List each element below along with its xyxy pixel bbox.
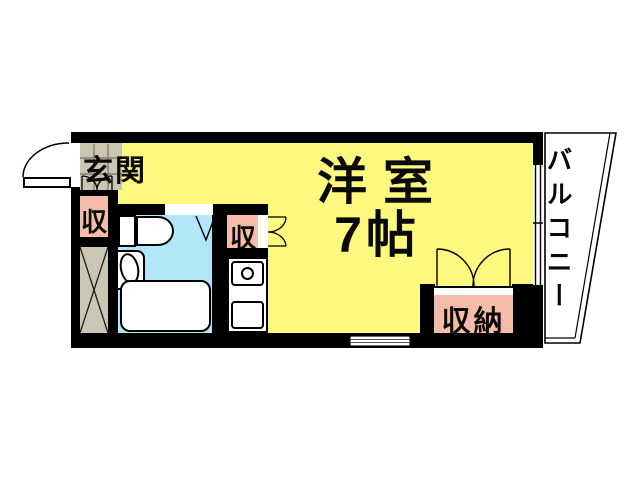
main-room-size: 7帖 (285, 209, 465, 262)
pipe-shaft-cross-icon (80, 247, 108, 333)
main-room-name: 洋室 (285, 156, 465, 209)
main-room-label: 洋室 7帖 (285, 156, 465, 262)
entrance-label: 玄関 (83, 146, 147, 190)
storage-kitchen-doors-icon (268, 217, 286, 246)
balcony-label: バルコニー (547, 146, 577, 346)
bottom-wall-window-icon (350, 336, 410, 346)
storage-kitchen-label: 収 (227, 218, 259, 255)
floorplan: 玄関 洋室 7帖 収 収 収納 バルコニー (0, 0, 640, 480)
storage-entrance-label: 収 (79, 202, 109, 239)
entrance-door-swing-icon (23, 143, 69, 177)
folding-door-icon (196, 216, 215, 240)
closet-label: 収納 (434, 298, 513, 340)
